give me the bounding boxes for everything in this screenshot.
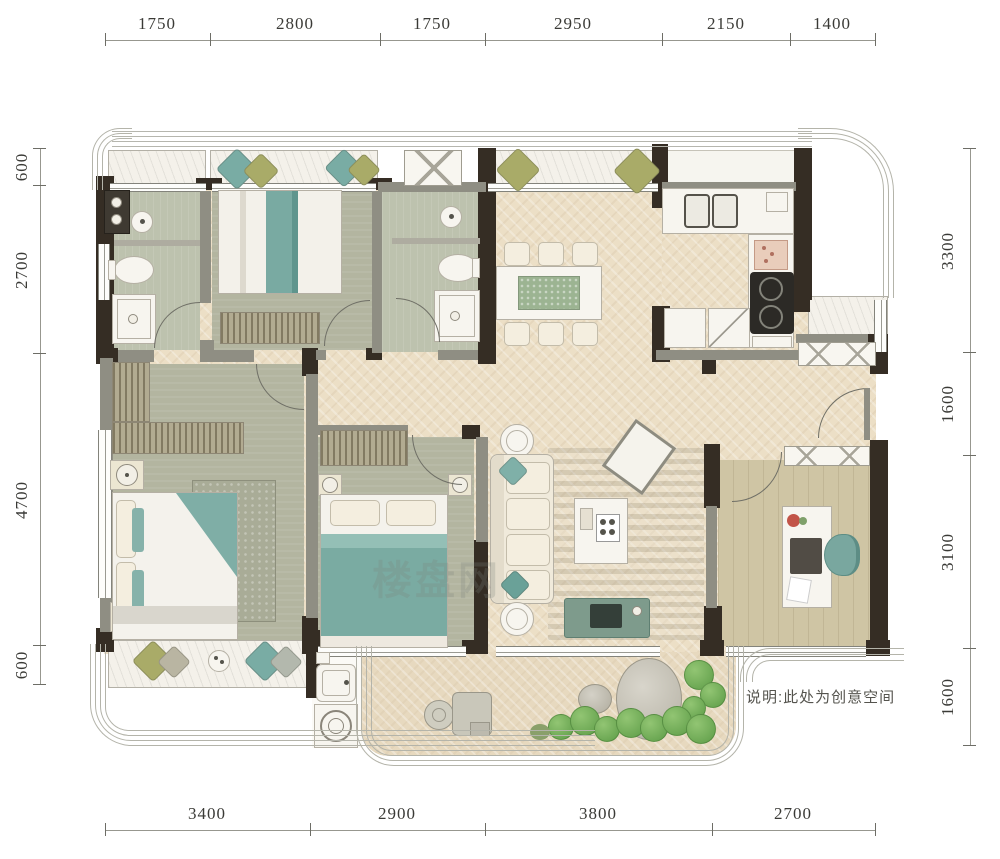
dimension-label: 3100 [938,520,958,584]
cabinet-x-icon [828,447,871,465]
dimension-label: 2950 [541,14,605,34]
bed-blanket-fold [321,534,447,548]
cabinet-x-icon [785,447,828,465]
dimension-label: 1600 [938,665,958,729]
dimension-line-bottom [105,830,875,831]
dimension-label: 3400 [175,804,239,824]
food-icon [764,259,768,263]
wall [306,374,318,618]
drain-icon [450,311,460,321]
railing-corner-topright [798,128,894,298]
wall [200,350,254,362]
pillow [132,570,144,610]
railing-corner-topleft [92,128,132,190]
dining-chair [572,242,598,266]
dimension-label: 1750 [400,14,464,34]
top-railing [112,131,812,150]
pillow [330,500,380,526]
tick [210,33,211,46]
tick [712,823,713,836]
tray [596,514,620,542]
bedside-lamp-icon [322,477,338,493]
tick [485,33,486,46]
kitchen-sink [684,194,710,228]
toilet-tank [472,258,480,278]
dimension-label: 1750 [125,14,189,34]
dimension-label: 2700 [761,804,825,824]
bathroom2-divider [392,238,480,244]
laptop-icon [790,538,822,574]
sofa-cushion [506,498,550,530]
wall [656,350,802,360]
tick [963,352,976,353]
book [580,508,593,530]
tick [875,33,876,46]
study-cabinet [784,446,870,466]
entry-shoe-cabinet [798,342,876,366]
kitchen-cabinet-diagonal [708,308,750,348]
dimension-label: 600 [12,135,32,199]
wall [706,506,717,608]
watermark-text: 楼盘网 [372,548,501,606]
note-text: 说明:此处为创意空间 [746,686,916,707]
dimension-line-right [970,148,971,745]
dimension-label: 2150 [694,14,758,34]
tick [105,823,106,836]
faucet-icon [140,219,145,224]
pillow [386,500,436,526]
hall-cabinet [404,150,462,186]
tick [790,33,791,46]
bedroom1-dresser [220,312,320,344]
tick [963,745,976,746]
tick [105,33,106,46]
bed-blanket-fold [292,191,298,293]
refrigerator [752,336,792,348]
vanity-knob-icon [111,214,122,225]
food-icon [762,246,766,250]
master-wardrobe-horizontal [112,422,244,454]
table-runner [518,276,580,310]
dining-chair [504,322,530,346]
tick [662,33,663,46]
dining-chair [504,242,530,266]
tick [963,148,976,149]
dining-chair [538,322,564,346]
dimension-line-top [105,40,875,41]
dining-chair [572,322,598,346]
remote-icon [600,529,606,535]
kitchen-sink [712,194,738,228]
drain-icon [128,314,138,324]
floor-plan: 说明:此处为创意空间 楼盘网 1750 2800 1750 2950 2150 … [0,0,1000,859]
lamp-center [125,473,129,477]
remote-icon [609,519,615,525]
dimension-label: 1600 [938,372,958,436]
kitchen-top-strip [660,150,798,186]
sofa-cushion [506,534,550,566]
leaf-icon [799,517,807,525]
wall [870,440,888,650]
vanity-knob-icon [111,197,122,208]
remote-icon [600,519,606,525]
kitchen-cabinet [664,308,706,348]
master-wardrobe-vertical [112,362,150,422]
burner-icon [759,277,783,301]
wall [316,350,326,360]
bathroom1-toilet [114,256,154,284]
wall [794,296,810,312]
dimension-label: 2700 [12,238,32,302]
dimension-label: 2900 [365,804,429,824]
side-table-ring [506,430,528,452]
tick [33,148,46,149]
toilet-tank [108,260,116,280]
entry-door-leaf [864,388,870,440]
dining-chair [538,242,564,266]
railing-under-study [740,648,904,682]
terrace-railing [356,646,744,766]
cabinet-x-icon [838,343,877,365]
bedroom2-wardrobe [320,430,408,466]
wall [438,350,478,360]
tick [33,353,46,354]
cabinet-x-icon [799,343,838,365]
faucet-icon [449,214,454,219]
dimension-label: 3300 [938,219,958,283]
wall [476,437,488,542]
remote-icon [609,529,615,535]
tick [963,455,976,456]
bed-blanket [266,191,292,293]
tick [875,823,876,836]
tick [485,823,486,836]
burner-icon [759,305,783,329]
tick [963,648,976,649]
kitchen-small-appliance [766,192,788,212]
papers [786,576,812,603]
desk-chair [824,534,860,576]
dimension-label: 600 [12,633,32,697]
dimension-label: 3800 [566,804,630,824]
dimension-label: 1400 [800,14,864,34]
tv-icon [590,604,622,628]
wall [372,191,382,353]
dimension-label: 4700 [12,468,32,532]
dimension-line-left [40,148,41,684]
tick [33,684,46,685]
bed-footer [113,606,237,624]
console-decor [632,606,642,616]
bed-sheet-fold [240,191,246,293]
tick [33,185,46,186]
wall [704,444,720,508]
food-icon [770,252,774,256]
tick [380,33,381,46]
bathroom1-divider [114,240,200,246]
pillow [132,508,144,552]
window [98,430,112,598]
tick [310,823,311,836]
wall [200,191,211,303]
dimension-label: 2800 [263,14,327,34]
wall [118,350,154,362]
cabinet-x-icon [405,151,463,185]
side-table-ring [506,608,528,630]
tick [33,645,46,646]
wall [478,148,496,364]
